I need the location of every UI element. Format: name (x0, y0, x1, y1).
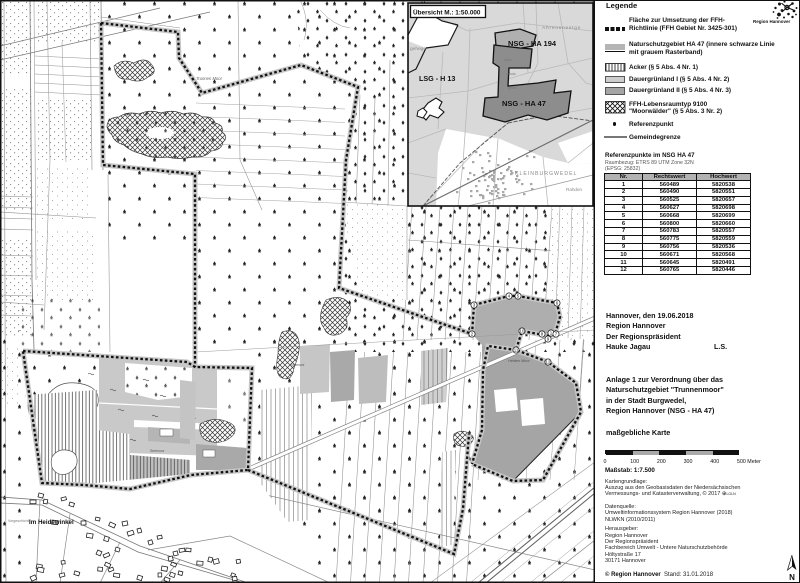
svg-text:schutz-: schutz- (506, 72, 518, 76)
svg-text:Trunnen Moor: Trunnen Moor (196, 76, 223, 81)
svg-text:NSG - HA 47: NSG - HA 47 (502, 99, 546, 108)
svg-text:Heiden Moor: Heiden Moor (508, 359, 530, 363)
svg-text:Übersicht M.: 1:50.000: Übersicht M.: 1:50.000 (413, 7, 481, 16)
svg-text:gebiet: gebiet (508, 86, 518, 90)
svg-text:N: N (789, 573, 795, 582)
svg-text:Seemoor: Seemoor (290, 363, 305, 367)
svg-text:11: 11 (514, 348, 519, 353)
svg-text:Rahden: Rahden (566, 187, 583, 192)
svg-text:NSG - HA 194: NSG - HA 194 (508, 39, 557, 48)
svg-text:Vorgeschichtl.: Vorgeschichtl. (8, 519, 30, 523)
svg-text:10: 10 (520, 329, 525, 334)
svg-text:12: 12 (546, 360, 551, 365)
svg-text:gehege: gehege (410, 46, 426, 52)
svg-text:KLEINBURGWEDEL: KLEINBURGWEDEL (515, 171, 577, 177)
svg-text:LSG - H 13: LSG - H 13 (419, 74, 455, 83)
svg-text:Natur-: Natur- (504, 58, 514, 62)
svg-text:Ahrensnestge: Ahrensnestge (542, 25, 581, 31)
svg-text:Im Heidewinkel: Im Heidewinkel (29, 519, 74, 526)
svg-text:Seemoor: Seemoor (150, 449, 165, 453)
